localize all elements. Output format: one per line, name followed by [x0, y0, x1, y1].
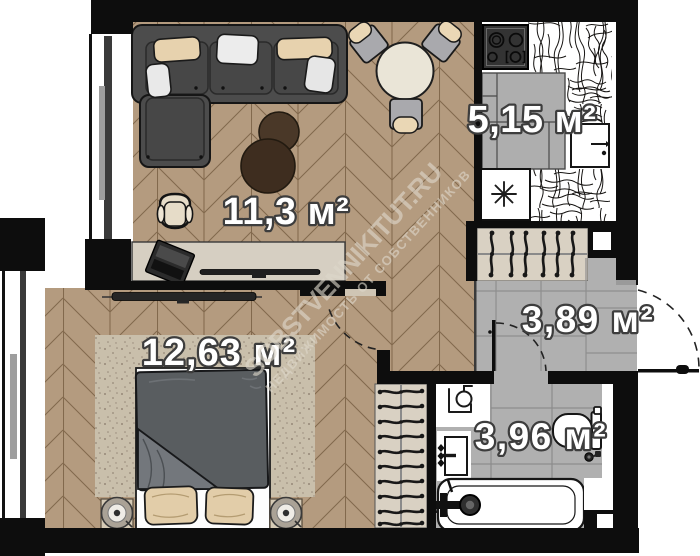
svg-text:3,89 м²: 3,89 м² [522, 299, 654, 340]
svg-text:5,15 м²: 5,15 м² [468, 99, 597, 141]
svg-text:11,3 м²: 11,3 м² [223, 191, 350, 233]
svg-text:3,96 м²: 3,96 м² [475, 416, 607, 457]
